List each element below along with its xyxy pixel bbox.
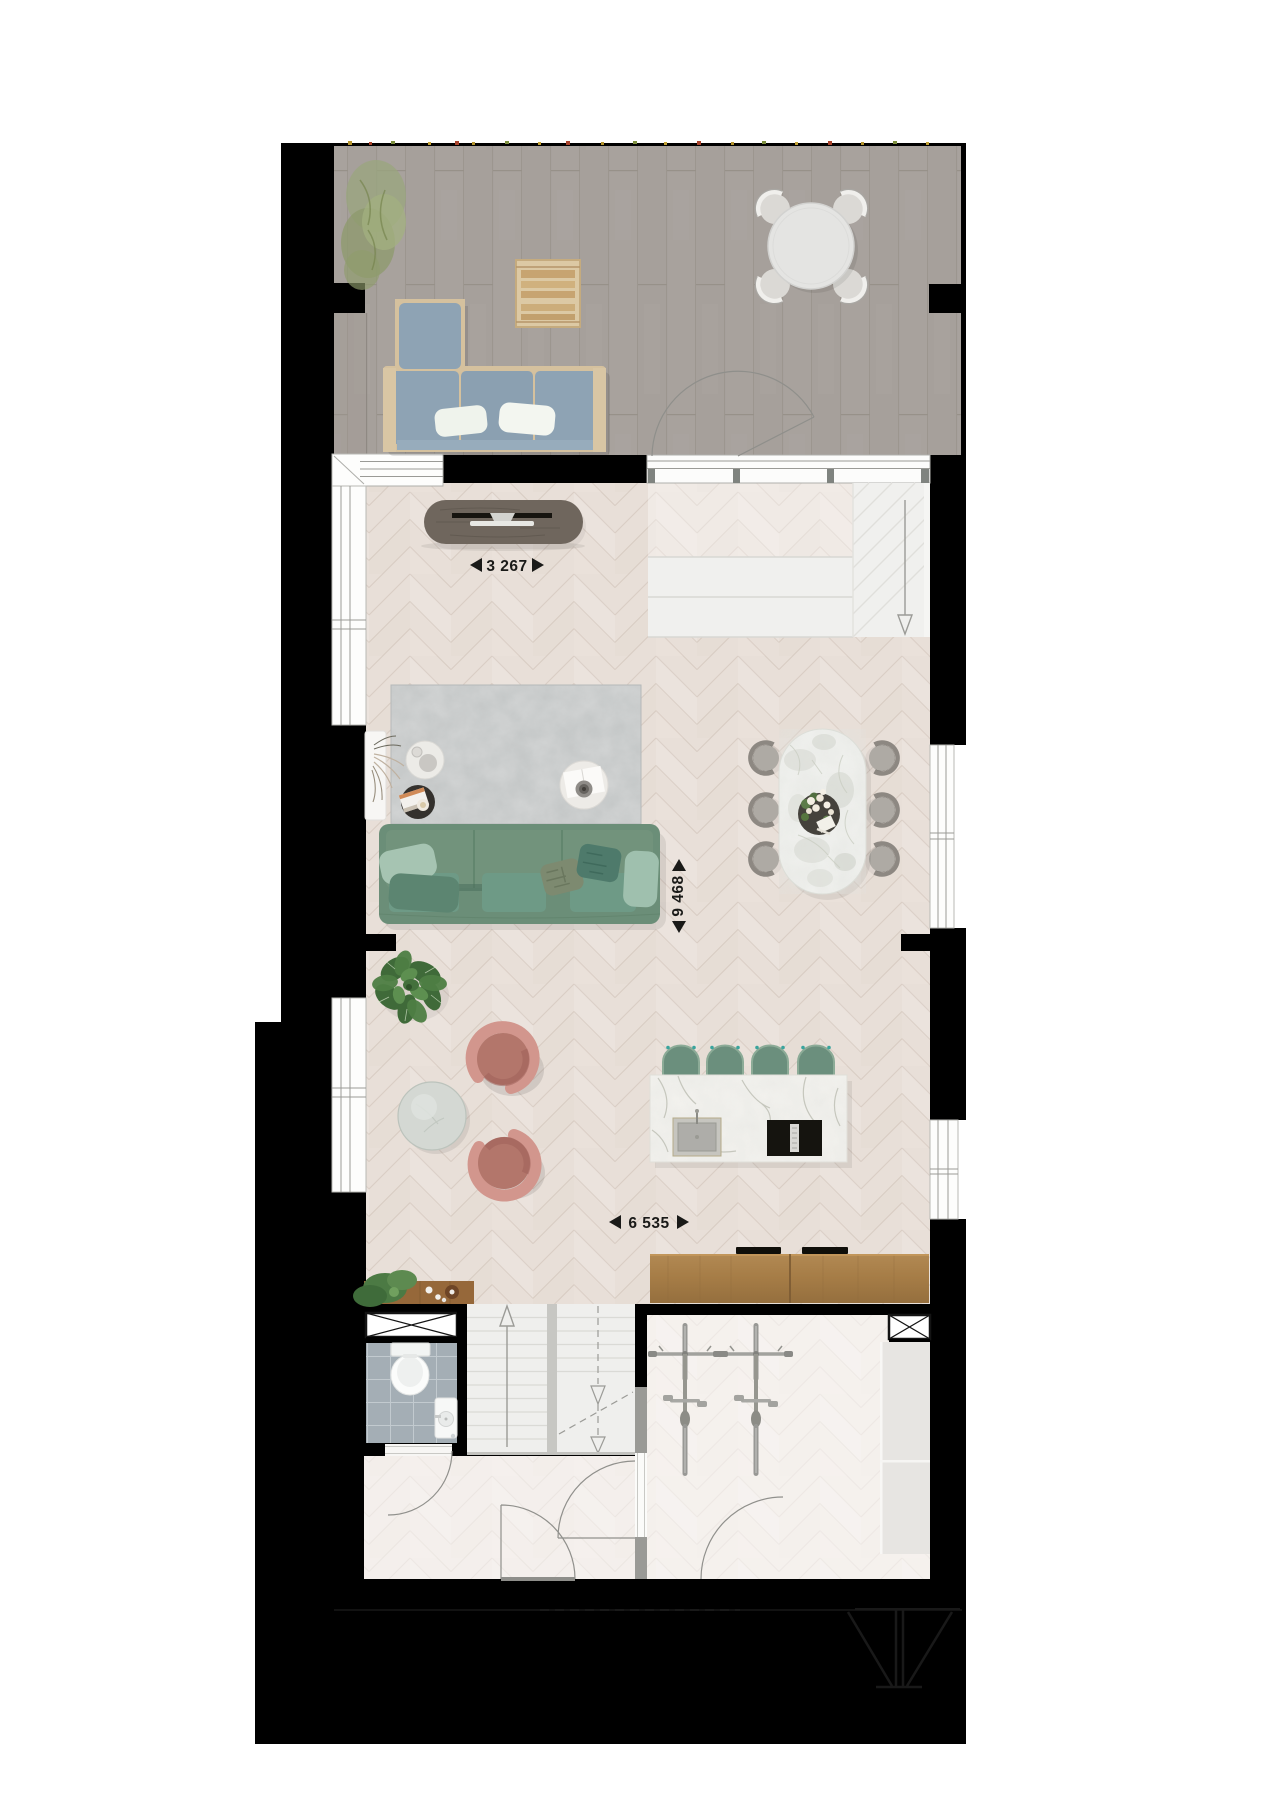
svg-text:6 535: 6 535: [628, 1215, 669, 1232]
svg-text:3 267: 3 267: [486, 558, 527, 575]
svg-text:9 468: 9 468: [670, 875, 687, 916]
